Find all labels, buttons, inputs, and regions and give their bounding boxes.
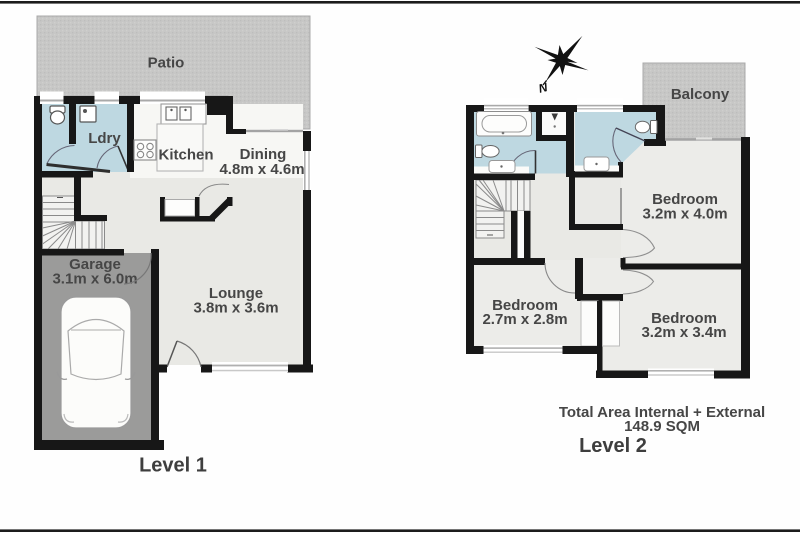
- svg-text:3.8m x 3.6m: 3.8m x 3.6m: [193, 300, 278, 317]
- svg-text:148.9 SQM: 148.9 SQM: [624, 418, 700, 435]
- svg-text:2.7m x 2.8m: 2.7m x 2.8m: [482, 311, 567, 328]
- svg-text:Patio: Patio: [148, 55, 185, 72]
- svg-text:3.2m x 4.0m: 3.2m x 4.0m: [642, 206, 727, 223]
- svg-text:Level 1: Level 1: [139, 455, 207, 477]
- svg-text:3.2m x 3.4m: 3.2m x 3.4m: [641, 324, 726, 341]
- svg-text:Level 2: Level 2: [579, 435, 647, 457]
- svg-text:Kitchen: Kitchen: [158, 147, 213, 164]
- svg-text:Balcony: Balcony: [671, 86, 730, 103]
- svg-text:Ldry: Ldry: [88, 130, 121, 147]
- svg-text:3.1m x 6.0m: 3.1m x 6.0m: [52, 271, 137, 288]
- svg-text:4.8m x 4.6m: 4.8m x 4.6m: [219, 161, 304, 178]
